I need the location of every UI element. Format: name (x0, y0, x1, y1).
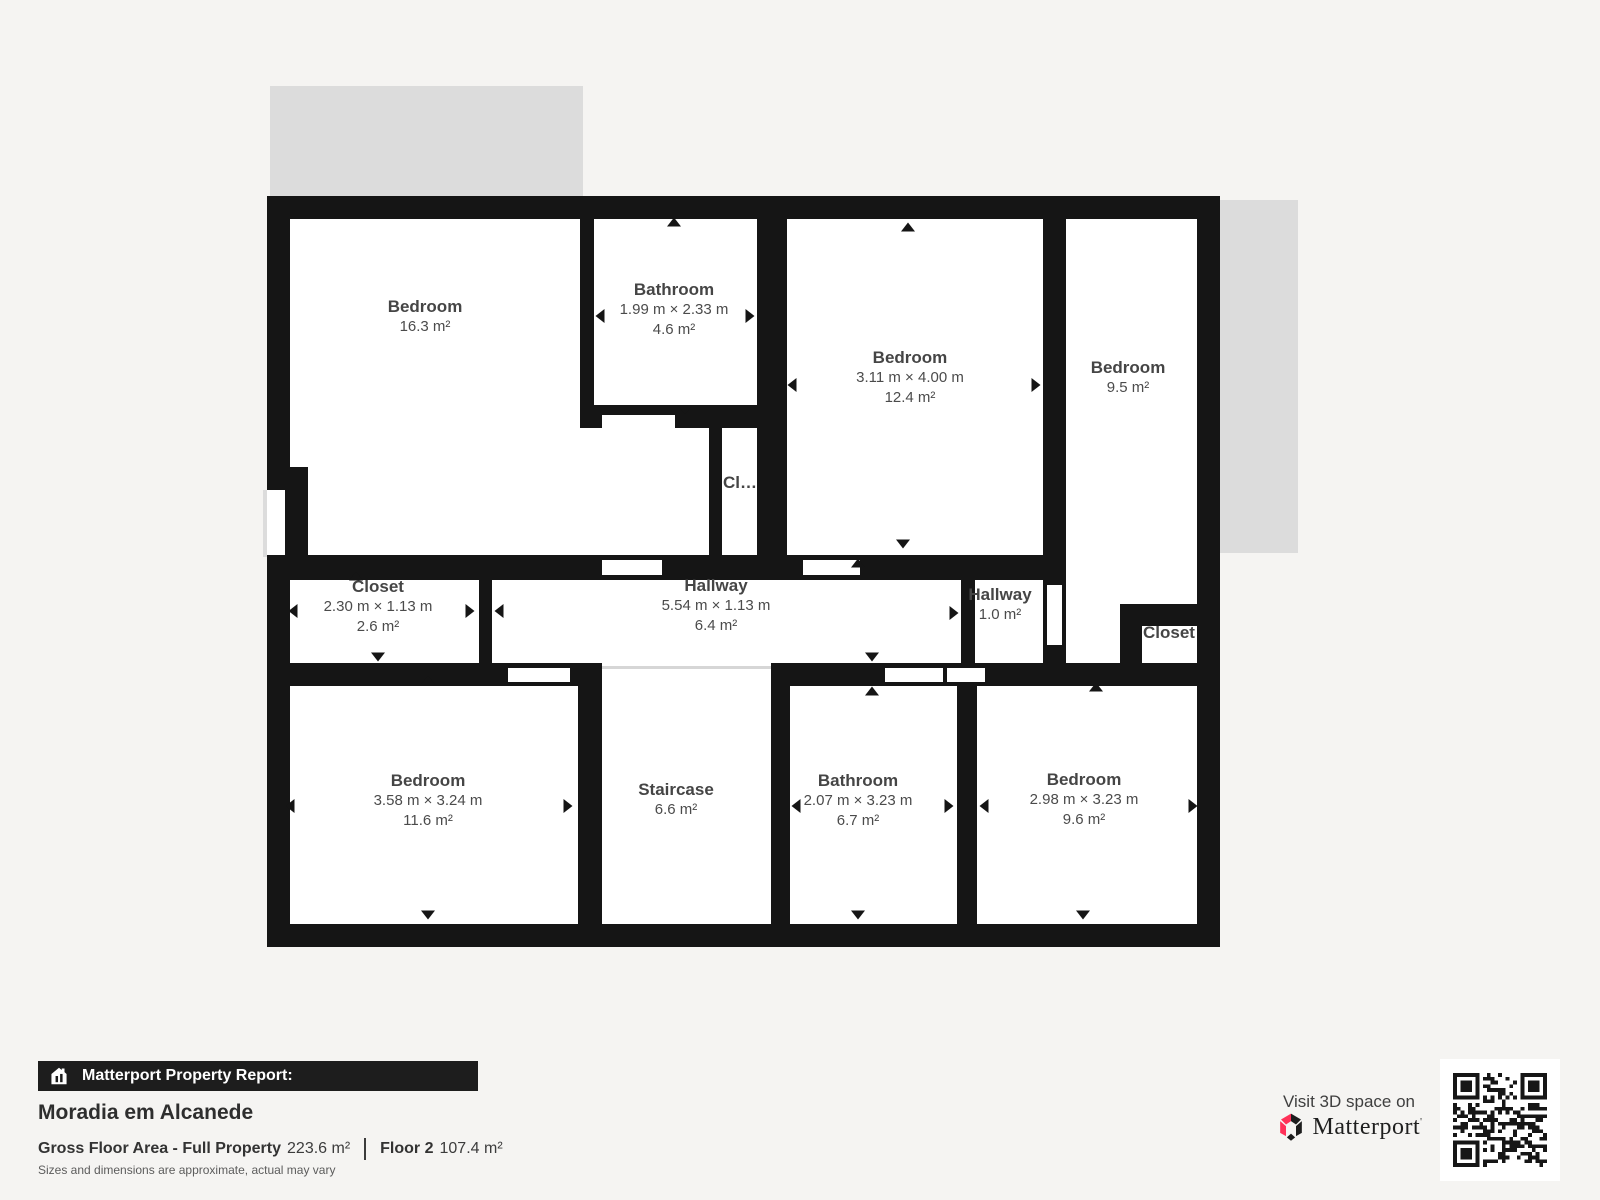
dim-arrow-left-icon (495, 604, 504, 618)
house-report-icon (48, 1065, 70, 1087)
room-area: 2.6 m² (324, 617, 433, 636)
wall (1120, 604, 1142, 686)
dim-arrow-up-icon (865, 687, 879, 696)
dim-arrow-up-icon (349, 572, 363, 581)
room-dims: 2.98 m × 3.23 m (1030, 790, 1139, 810)
room-name: Bedroom (374, 770, 483, 791)
gross-floor-area-label: Gross Floor Area - Full Property (38, 1140, 281, 1158)
room-label-bedroom-4: Bedroom 3.58 m × 3.24 m 11.6 m² (374, 770, 483, 830)
room-dims: 2.07 m × 3.23 m (804, 791, 913, 811)
dim-arrow-right-icon (945, 799, 954, 813)
dim-arrow-right-icon (746, 309, 755, 323)
room-label-bedroom-2: Bedroom 3.11 m × 4.00 m 12.4 m² (856, 347, 964, 407)
room-dims: 3.58 m × 3.24 m (374, 791, 483, 811)
dim-arrow-right-icon (466, 604, 475, 618)
wall (957, 686, 977, 924)
report-title: Matterport Property Report: (82, 1067, 293, 1085)
room-name: Cl… (723, 472, 757, 493)
door-opening (508, 668, 570, 682)
matterport-logo: Matterport' (1254, 1112, 1444, 1142)
wall (267, 196, 1220, 219)
floor-plan: Bedroom 16.3 m² Bathroom 1.99 m × 2.33 m… (0, 0, 1600, 1000)
wall (1197, 196, 1220, 947)
room-name: Bedroom (1091, 357, 1166, 378)
qr-code (1440, 1059, 1560, 1181)
dim-arrow-up-icon (851, 559, 865, 568)
wall (267, 196, 290, 490)
room-label-closet-truncated: Cl… (723, 472, 757, 493)
wall (709, 428, 722, 558)
dim-arrow-up-icon (667, 218, 681, 227)
wall (771, 663, 790, 924)
room-area: 4.6 m² (620, 320, 729, 339)
dim-arrow-left-icon (289, 604, 298, 618)
room-name: Closet (1143, 622, 1195, 643)
exterior-area-right (1220, 200, 1298, 553)
room-label-hallway-1: Hallway 5.54 m × 1.13 m 6.4 m² (662, 575, 771, 635)
matterport-pinwheel-icon (1276, 1112, 1306, 1142)
room-dims: 2.30 m × 1.13 m (324, 597, 433, 617)
room-name: Hallway (662, 575, 771, 596)
room-name: Staircase (638, 779, 714, 800)
room-label-hallway-2: Hallway 1.0 m² (968, 584, 1031, 624)
dim-arrow-left-icon (788, 378, 797, 392)
room-name: Bedroom (1030, 769, 1139, 790)
room-name: Closet (324, 576, 433, 597)
area-summary: Gross Floor Area - Full Property 223.6 m… (38, 1138, 503, 1160)
room-area: 1.0 m² (968, 605, 1031, 624)
room-label-closet-1: Closet 2.30 m × 1.13 m 2.6 m² (324, 576, 433, 636)
wall (267, 924, 1220, 947)
dim-arrow-left-icon (596, 309, 605, 323)
room-dims: 5.54 m × 1.13 m (662, 596, 771, 616)
dim-arrow-down-icon (896, 540, 910, 549)
room-area: 12.4 m² (856, 388, 964, 407)
room-dims: 1.99 m × 2.33 m (620, 300, 729, 320)
room-name: Bedroom (856, 347, 964, 368)
door-opening (885, 668, 943, 682)
room-label-bedroom-5: Bedroom 2.98 m × 3.23 m 9.6 m² (1030, 769, 1139, 829)
floor-label: Floor 2 (380, 1140, 433, 1158)
dim-arrow-up-icon (901, 223, 915, 232)
dim-arrow-down-icon (851, 911, 865, 920)
door-opening (1047, 585, 1062, 645)
room-label-staircase: Staircase 6.6 m² (638, 779, 714, 819)
room-label-bathroom-1: Bathroom 1.99 m × 2.33 m 4.6 m² (620, 279, 729, 339)
room-label-bedroom-3: Bedroom 9.5 m² (1091, 357, 1166, 397)
wall (757, 196, 787, 580)
dim-arrow-right-icon (564, 799, 573, 813)
dim-arrow-left-icon (286, 799, 295, 813)
wall (578, 663, 602, 924)
separator (364, 1138, 366, 1160)
dim-arrow-right-icon (950, 606, 959, 620)
dim-arrow-down-icon (371, 653, 385, 662)
room-name: Bathroom (620, 279, 729, 300)
dim-arrow-down-icon (865, 653, 879, 662)
property-name: Moradia em Alcanede (38, 1101, 253, 1125)
room-area: 6.4 m² (662, 616, 771, 635)
wall (267, 467, 308, 490)
door-opening (602, 415, 675, 428)
dim-arrow-right-icon (1189, 799, 1198, 813)
room-area: 6.7 m² (804, 811, 913, 830)
room-label-bathroom-2: Bathroom 2.07 m × 3.23 m 6.7 m² (804, 770, 913, 830)
disclaimer-text: Sizes and dimensions are approximate, ac… (38, 1163, 335, 1177)
room-area: 9.5 m² (1091, 378, 1166, 397)
wall (580, 196, 594, 428)
matterport-wordmark: Matterport' (1313, 1114, 1423, 1141)
room-area: 11.6 m² (374, 811, 483, 830)
wall (267, 557, 290, 947)
door-opening (947, 668, 985, 682)
visit-3d-text: Visit 3D space on (1254, 1092, 1444, 1112)
dim-arrow-up-icon (421, 676, 435, 685)
dim-arrow-up-icon (1089, 683, 1103, 692)
dim-arrow-right-icon (1032, 378, 1041, 392)
report-title-bar: Matterport Property Report: (38, 1061, 478, 1091)
staircase-edge-line (602, 666, 771, 669)
dim-arrow-down-icon (421, 911, 435, 920)
dim-arrow-down-icon (678, 406, 692, 415)
room-dims: 3.11 m × 4.00 m (856, 368, 964, 388)
dim-arrow-left-icon (980, 799, 989, 813)
floor-value: 107.4 m² (440, 1140, 503, 1158)
room-name: Bathroom (804, 770, 913, 791)
room-name: Hallway (968, 584, 1031, 605)
door-opening (602, 560, 662, 575)
room-label-bedroom-1: Bedroom 16.3 m² (388, 296, 463, 336)
gross-floor-area-value: 223.6 m² (287, 1140, 350, 1158)
exterior-area-top (270, 86, 583, 198)
room-area: 6.6 m² (638, 800, 714, 819)
dim-arrow-left-icon (792, 799, 801, 813)
dim-arrow-down-icon (1076, 911, 1090, 920)
room-area: 9.6 m² (1030, 810, 1139, 829)
room-label-closet-2: Closet (1143, 622, 1195, 643)
room-area: 16.3 m² (388, 317, 463, 336)
room-name: Bedroom (388, 296, 463, 317)
